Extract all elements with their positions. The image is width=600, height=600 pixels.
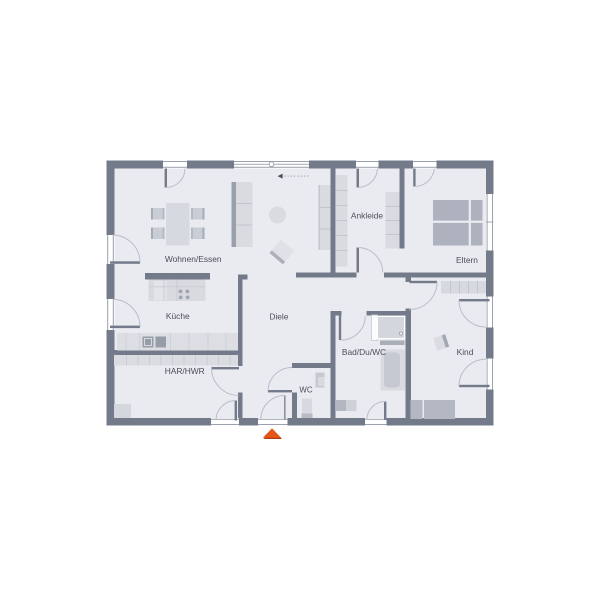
svg-text:Küche: Küche (166, 311, 190, 321)
svg-text:Ankleide: Ankleide (351, 210, 383, 220)
svg-text:HAR/HWR: HAR/HWR (165, 366, 205, 376)
svg-text:WC: WC (299, 386, 312, 395)
svg-text:Bad/Du/WC: Bad/Du/WC (342, 347, 386, 357)
svg-text:Kind: Kind (457, 347, 474, 357)
svg-text:Eltern: Eltern (456, 255, 478, 265)
svg-text:Wohnen/Essen: Wohnen/Essen (165, 254, 222, 264)
svg-text:Diele: Diele (269, 311, 288, 321)
